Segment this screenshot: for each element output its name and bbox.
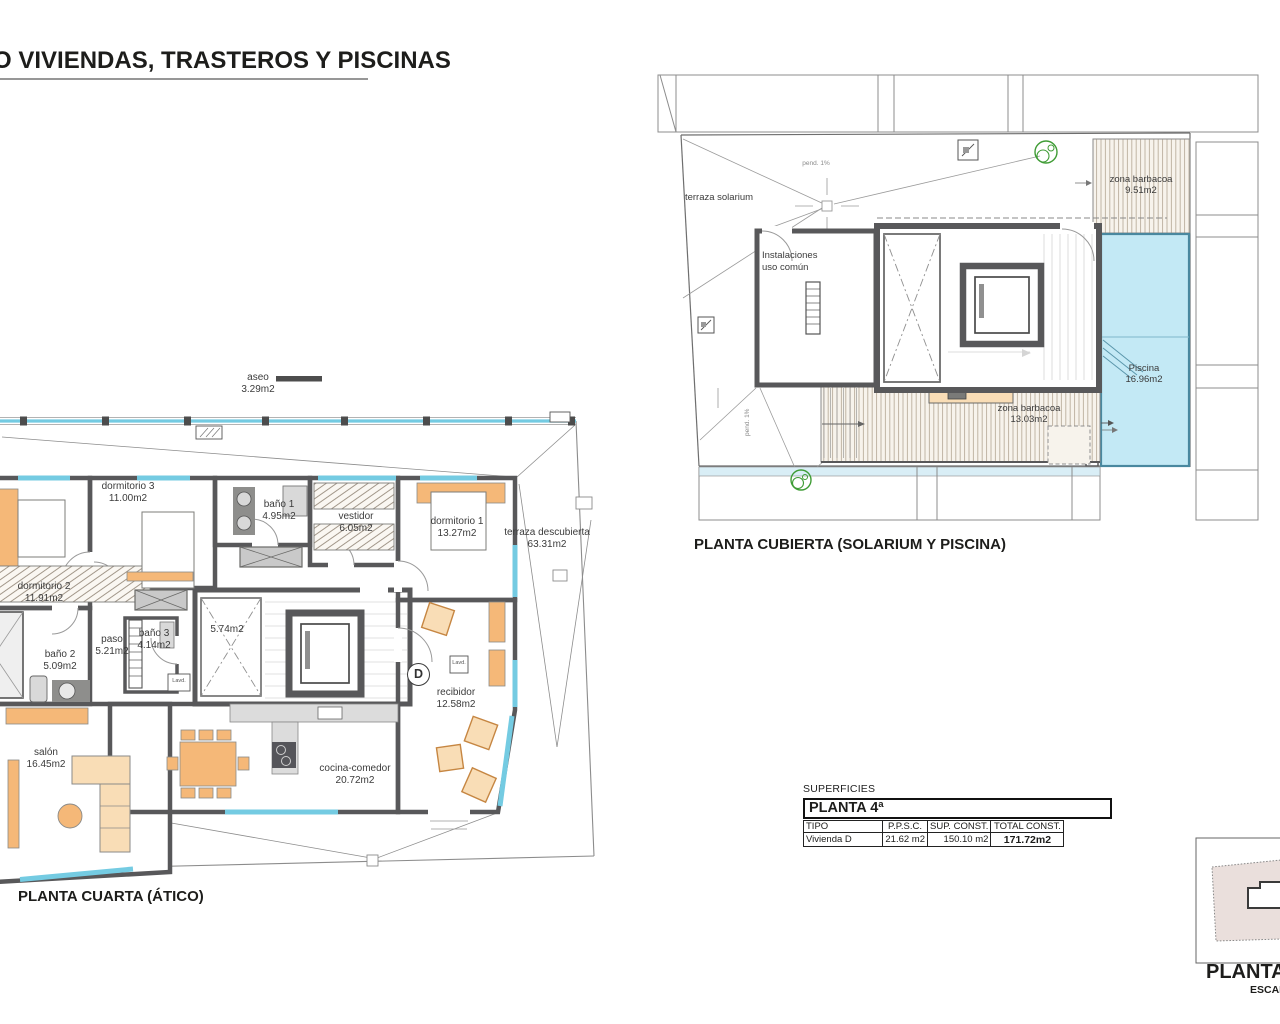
room-name: zona barbacoa — [1110, 174, 1173, 185]
room-label-escalera: 5.74m2 — [210, 624, 243, 636]
room-area: 16.45m2 — [27, 759, 66, 771]
room-area: 20.72m2 — [319, 775, 390, 787]
floor-plans-linework — [0, 0, 1280, 1024]
room-label-dormitorio-3: dormitorio 3 11.00m2 — [102, 481, 155, 505]
room-name: uso común — [762, 262, 817, 274]
room-name: salón — [27, 747, 66, 759]
keyplan-scale-label: ESCAL — [1250, 984, 1280, 996]
room-area: 12.58m2 — [437, 699, 476, 711]
room-name: zona barbacoa — [998, 403, 1061, 414]
room-label-banyo-3: baño 3 4.14m2 — [137, 628, 170, 652]
room-name: terraza descubierta — [504, 527, 590, 539]
atico-railing — [0, 376, 576, 439]
room-area: 9.51m2 — [1110, 185, 1173, 196]
col-total-const: TOTAL CONST. — [991, 821, 1064, 833]
room-area: 4.14m2 — [137, 640, 170, 652]
cell-sup-const: 150.10 m2 — [928, 833, 991, 847]
slope-annotation: pend. 1% — [802, 160, 829, 167]
caption-planta-cubierta: PLANTA CUBIERTA (SOLARIUM Y PISCINA) — [694, 536, 1006, 553]
surface-summary-floor: PLANTA 4ª — [803, 798, 1112, 819]
sheet-title: O VIVIENDAS, TRASTEROS Y PISCINAS — [0, 47, 451, 75]
room-label-terraza-solarium: terraza solarium — [685, 192, 753, 203]
col-sup-const: SUP. CONST. — [928, 821, 991, 833]
room-name: baño 2 — [43, 649, 76, 661]
room-name: dormitorio 2 — [18, 581, 71, 593]
room-label-cocina-comedor: cocina-comedor 20.72m2 — [319, 763, 390, 787]
room-label-instalaciones: Instalaciones uso común — [762, 250, 817, 274]
room-label-vestidor: vestidor 6.05m2 — [338, 511, 373, 535]
room-name: terraza solarium — [685, 192, 753, 203]
col-ppsc: P.P.S.C. — [883, 821, 928, 833]
plan-sheet: { "page": { "title": "O VIVIENDAS, TRAST… — [0, 0, 1280, 1024]
room-area: 3.29m2 — [241, 384, 274, 396]
col-tipo: TIPO — [804, 821, 883, 833]
room-label-banyo-2: baño 2 5.09m2 — [43, 649, 76, 673]
room-area: 5.21m2 — [95, 646, 128, 658]
title-underline — [0, 78, 368, 80]
room-label-zona-barbacoa-2: zona barbacoa 13.03m2 — [998, 403, 1061, 425]
cell-tipo: Vivienda D — [804, 833, 883, 847]
room-area: 5.09m2 — [43, 661, 76, 673]
cubierta-bottom-strip — [699, 467, 1100, 520]
room-label-salon: salón 16.45m2 — [27, 747, 66, 771]
room-name: dormitorio 1 — [431, 516, 484, 528]
cell-total-const: 171.72m2 — [991, 833, 1064, 847]
room-label-paso: paso 5.21m2 — [95, 634, 128, 658]
room-label-recibidor: recibidor 12.58m2 — [437, 687, 476, 711]
room-area: 11.00m2 — [102, 493, 155, 505]
table-header-row: TIPO P.P.S.C. SUP. CONST. TOTAL CONST. — [804, 821, 1064, 833]
unit-letter-badge: D — [407, 663, 430, 686]
room-label-aseo: aseo 3.29m2 — [241, 372, 274, 396]
room-label-zona-barbacoa-1: zona barbacoa 9.51m2 — [1110, 174, 1173, 196]
room-name: dormitorio 3 — [102, 481, 155, 493]
room-label-banyo-1: baño 1 4.95m2 — [262, 499, 295, 523]
room-label-piscina: Piscina 16.96m2 — [1126, 363, 1163, 385]
room-label-dormitorio-1: dormitorio 1 13.27m2 — [431, 516, 484, 540]
label-lavadero: Lavd. — [172, 678, 185, 684]
slope-annotation: pend. 1% — [744, 409, 751, 436]
room-area: 16.96m2 — [1126, 374, 1163, 385]
caption-planta-cuarta: PLANTA CUARTA (ÁTICO) — [18, 888, 204, 905]
room-name: vestidor — [338, 511, 373, 523]
room-area: 11.91m2 — [18, 593, 71, 605]
room-name: baño 3 — [137, 628, 170, 640]
label-lavadero: Lavd. — [452, 660, 465, 666]
surface-summary-grid: TIPO P.P.S.C. SUP. CONST. TOTAL CONST. V… — [803, 820, 1064, 847]
cell-ppsc: 21.62 m2 — [883, 833, 928, 847]
surface-summary-title: SUPERFICIES — [803, 783, 1112, 795]
surface-summary: SUPERFICIES PLANTA 4ª TIPO P.P.S.C. SUP.… — [803, 783, 1112, 847]
room-area: 63.31m2 — [504, 539, 590, 551]
room-name: Piscina — [1126, 363, 1163, 374]
room-name: Instalaciones — [762, 250, 817, 262]
room-name: aseo — [241, 372, 274, 384]
room-area: 13.03m2 — [998, 414, 1061, 425]
room-name: paso — [95, 634, 128, 646]
keyplan-caption: PLANTA CU — [1206, 961, 1280, 984]
room-name: recibidor — [437, 687, 476, 699]
room-area: 13.27m2 — [431, 528, 484, 540]
room-area: 4.95m2 — [262, 511, 295, 523]
room-area: 6.05m2 — [338, 523, 373, 535]
keyplan-thumbnail — [1196, 838, 1280, 963]
room-label-terraza-descubierta: terraza descubierta 63.31m2 — [504, 527, 590, 551]
room-area: 5.74m2 — [210, 624, 243, 636]
scale-bar — [276, 376, 322, 382]
room-name: baño 1 — [262, 499, 295, 511]
room-label-dormitorio-2: dormitorio 2 11.91m2 — [18, 581, 71, 605]
table-row: Vivienda D 21.62 m2 150.10 m2 171.72m2 — [804, 833, 1064, 847]
room-name: cocina-comedor — [319, 763, 390, 775]
